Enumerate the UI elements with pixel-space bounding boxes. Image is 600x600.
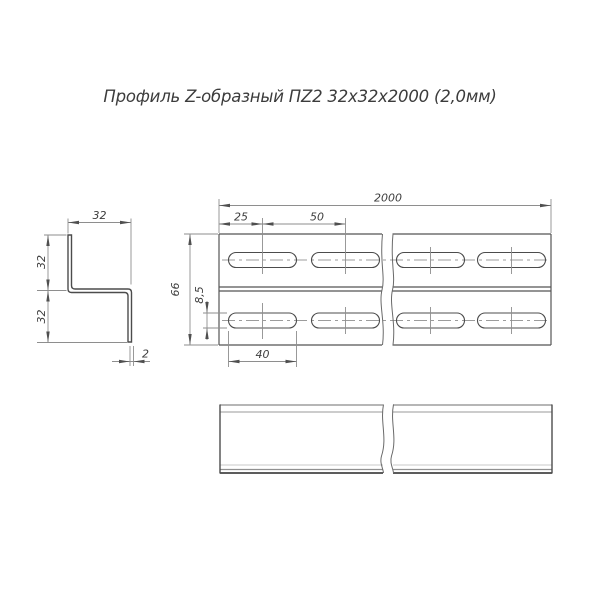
arrowhead: [46, 235, 49, 246]
arrowhead: [229, 360, 240, 363]
arrowhead: [335, 222, 346, 225]
arrowhead: [286, 360, 297, 363]
dim-label-slot-width: 8,5: [193, 286, 206, 304]
z-profile-outline: [68, 235, 132, 342]
arrowhead: [46, 291, 49, 302]
arrowhead: [252, 222, 263, 225]
drawing-linework: 32 32 32 2: [0, 0, 600, 600]
arrowhead: [68, 221, 79, 224]
dim-label-slot-pitch: 50: [310, 211, 324, 224]
arrowhead: [219, 204, 230, 207]
arrowhead: [46, 332, 49, 343]
dim-label-slot-offset: 25: [234, 211, 248, 224]
arrowhead: [263, 222, 274, 225]
arrowhead: [540, 204, 551, 207]
dim-label-flange-width: 32: [93, 209, 107, 222]
side-view: [220, 405, 552, 474]
dim-label-lower-leg: 32: [35, 310, 48, 324]
break-line: [381, 234, 383, 345]
dim-label-length: 2000: [374, 192, 402, 205]
drawing-sheet: Профиль Z-образный ПZ2 32х32х2000 (2,0мм…: [0, 0, 600, 600]
break-line: [391, 405, 394, 474]
arrowhead: [188, 234, 191, 245]
arrowhead: [46, 280, 49, 291]
cross-section-view: 32 32 32 2: [35, 209, 150, 366]
arrowhead: [205, 328, 208, 339]
arrowhead: [119, 360, 130, 363]
dim-label-thickness: 2: [142, 348, 149, 361]
plan-view: 2000 25 50 66 8,5 40: [169, 192, 551, 368]
arrowhead: [120, 221, 131, 224]
break-line: [381, 405, 384, 474]
break-line: [391, 234, 393, 345]
dim-label-slot-length: 40: [256, 348, 270, 361]
dim-label-upper-leg: 32: [35, 255, 48, 269]
arrowhead: [188, 334, 191, 345]
arrowhead: [219, 222, 230, 225]
dim-label-flat-width: 66: [169, 283, 182, 297]
